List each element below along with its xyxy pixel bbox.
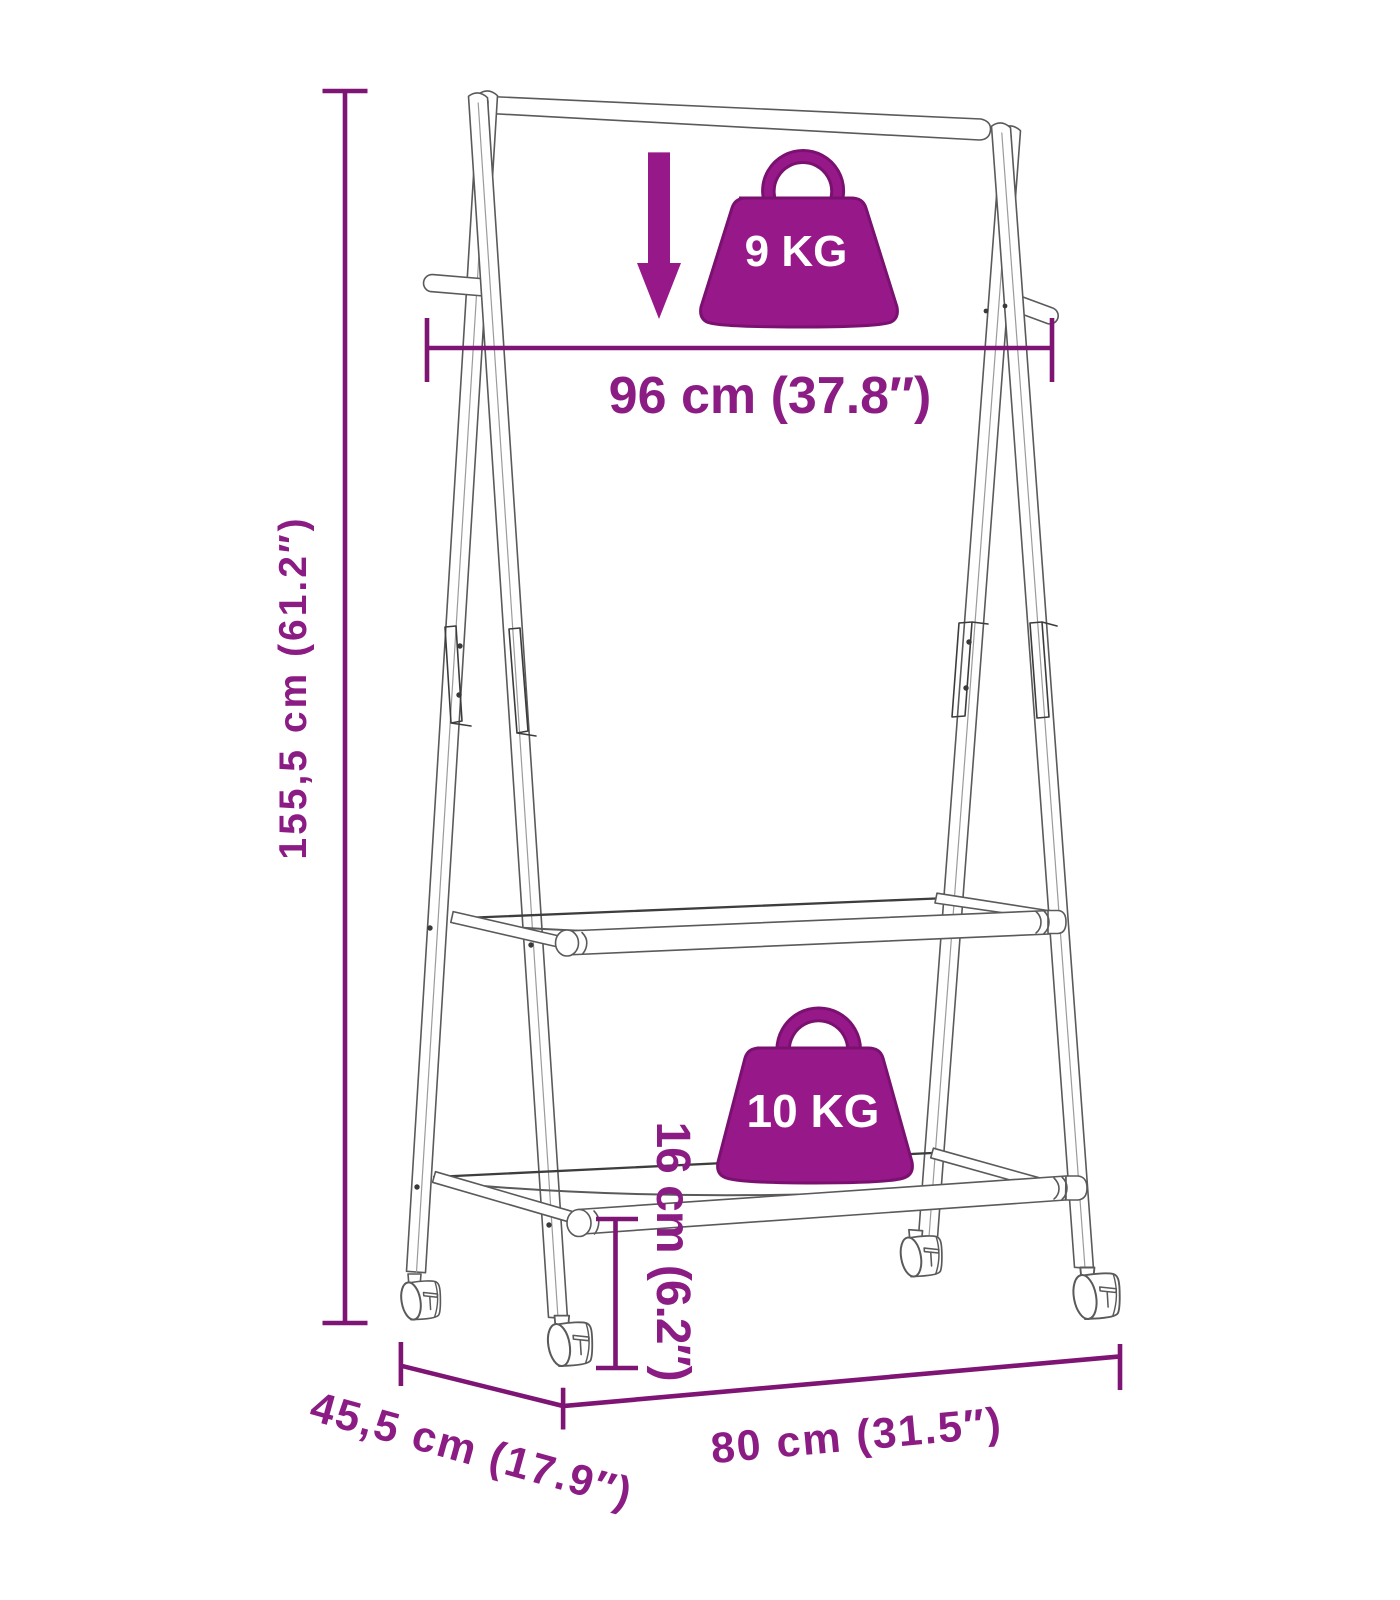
svg-text:155,5 cm (61.2″): 155,5 cm (61.2″) <box>272 515 315 859</box>
svg-text:9 KG: 9 KG <box>745 227 848 276</box>
svg-text:10 KG: 10 KG <box>747 1085 880 1137</box>
svg-text:96 cm (37.8″): 96 cm (37.8″) <box>609 367 932 425</box>
svg-text:16 cm (6.2″): 16 cm (6.2″) <box>646 1121 699 1380</box>
